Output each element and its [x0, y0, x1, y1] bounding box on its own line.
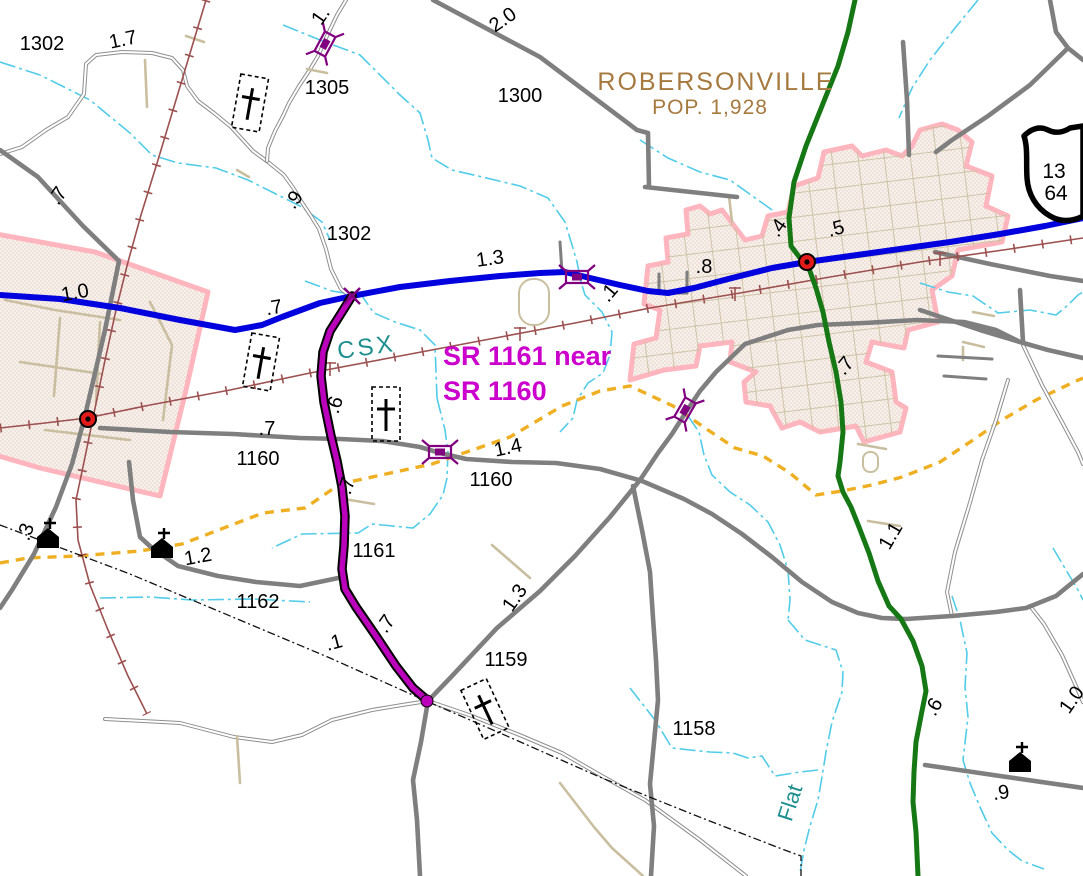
county-road-map: 13 64 ROBERSONVILLE POP. 1,928 SR 1161 n…: [0, 0, 1083, 876]
shield-route-top: 13: [1042, 160, 1065, 183]
us-route-shield: 13 64: [1024, 126, 1083, 221]
mileage-label: 1305: [305, 77, 350, 99]
project-callout-line2: SR 1160: [443, 376, 547, 406]
mileage-label: 1159: [484, 649, 527, 671]
church-icon: [372, 387, 400, 441]
railroad-name-label: CSX: [336, 330, 398, 365]
map-canvas: 13 64 ROBERSONVILLE POP. 1,928 SR 1161 n…: [0, 0, 1083, 876]
mileage-label: 1302: [20, 33, 65, 55]
mileage-label: 1160: [236, 448, 279, 470]
town-population-label: POP. 1,928: [652, 96, 768, 119]
intersection-dot-icon: [80, 411, 96, 427]
mileage-label: 1302: [327, 223, 372, 245]
church-icon: [243, 333, 280, 391]
mileage-label: .9: [280, 187, 308, 213]
church-icon: [37, 518, 59, 548]
mileage-label: .7: [264, 296, 284, 321]
mileage-label: 1.3: [475, 246, 506, 272]
mileage-label: .9: [991, 781, 1011, 805]
mileage-label: 1.4: [492, 434, 524, 461]
church-icon: [232, 74, 269, 132]
mileage-label: .1: [323, 630, 345, 656]
mileage-label: 1.7: [107, 26, 139, 53]
church-icon: [461, 679, 509, 740]
mileage-label: 1160: [469, 469, 512, 491]
project-callout-line1: SR 1161 near: [443, 341, 612, 371]
church-icon: [151, 528, 173, 558]
bridge-icon: [422, 440, 458, 464]
shield-route-bottom: 64: [1044, 182, 1068, 205]
mileage-label: 1161: [352, 540, 395, 562]
mileage-label: .7: [334, 475, 360, 498]
intersection-dot-icon: [799, 254, 815, 270]
mileage-label: .7: [259, 418, 276, 440]
green-route: [789, 0, 926, 876]
stream-name-label: Flat: [772, 781, 807, 824]
mileage-label: .3: [13, 520, 39, 543]
mileage-label: 1162: [236, 591, 279, 613]
route-end-node: [421, 695, 433, 707]
church-icon: [1009, 742, 1031, 772]
mileage-label: .8: [696, 256, 713, 278]
mileage-label: 1300: [498, 85, 543, 107]
mileage-label: 1158: [672, 718, 715, 740]
township-boundary: [0, 525, 801, 876]
town-name-label: ROBERSONVILLE: [597, 68, 834, 96]
mileage-label: 1.2: [182, 544, 213, 570]
mileage-label: 1.3: [498, 580, 532, 615]
